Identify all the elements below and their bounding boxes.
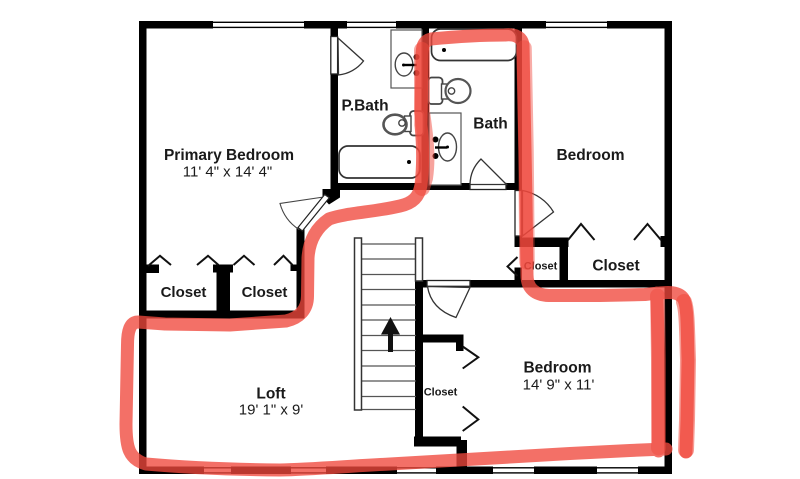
svg-text:Closet: Closet [161, 284, 207, 301]
svg-text:Closet: Closet [592, 258, 639, 275]
svg-text:Closet: Closet [242, 284, 288, 301]
svg-text:19' 1" x 9': 19' 1" x 9' [239, 402, 304, 419]
svg-text:Bath: Bath [473, 116, 507, 133]
svg-text:Bedroom: Bedroom [523, 360, 591, 377]
svg-text:Closet: Closet [424, 387, 458, 399]
svg-text:P.Bath: P.Bath [341, 98, 388, 115]
svg-text:Bedroom: Bedroom [556, 147, 624, 164]
svg-text:14' 9" x 11': 14' 9" x 11' [523, 377, 595, 394]
svg-text:Loft: Loft [256, 386, 285, 403]
svg-text:11' 4" x 14' 4": 11' 4" x 14' 4" [183, 164, 273, 181]
svg-text:Primary Bedroom: Primary Bedroom [164, 147, 294, 164]
